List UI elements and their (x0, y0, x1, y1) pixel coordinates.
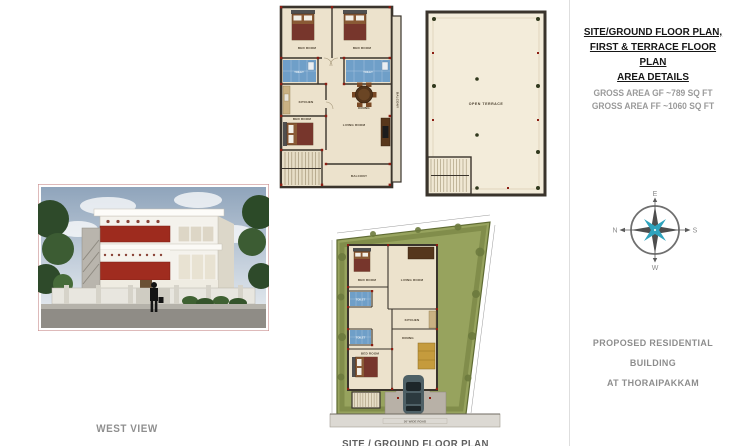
compass-icon: E S W N (610, 188, 700, 272)
gross-area-gf: GROSS AREA GF ~789 SQ FT (577, 87, 729, 100)
sidewalk (41, 304, 266, 309)
title-block-divider (569, 0, 570, 446)
room-label: KITCHEN (405, 318, 420, 322)
sofa-icon (408, 247, 434, 259)
room-label: DINING (402, 336, 414, 340)
compass-east-label: E (653, 191, 658, 198)
drawing-sheet: BED ROOM BED ROOM TOILET TOILET KITCHEN … (0, 0, 735, 446)
compass-west-label: W (652, 265, 659, 272)
compass-south-label: S (693, 228, 698, 235)
bed-icon (283, 122, 313, 146)
tv-unit-icon (381, 118, 390, 146)
sheet-title-line: AREA DETAILS (577, 70, 729, 85)
building-footprint: BED ROOM LIVING ROOM TOILET KITCHEN TOIL… (347, 244, 438, 390)
room-label: BED ROOM (361, 352, 379, 356)
gross-area-notes: GROSS AREA GF ~789 SQ FT GROSS AREA FF ~… (577, 87, 729, 113)
room-label: TOILET (356, 336, 366, 340)
room-label: LIVING ROOM (401, 278, 424, 282)
first-floor-plan: BED ROOM BED ROOM TOILET TOILET KITCHEN … (278, 4, 404, 190)
stairs-icon (352, 392, 380, 408)
compass-north-label: N (612, 228, 617, 235)
building (82, 209, 234, 298)
room-label: TOILET (294, 70, 304, 74)
sheet-title-line: FIRST & TERRACE FLOOR PLAN (577, 40, 729, 70)
room-label: LIVING ROOM (343, 123, 366, 127)
road: 30' WIDE ROAD (330, 414, 500, 427)
sheet-title-line: SITE/GROUND FLOOR PLAN, (577, 25, 729, 40)
room-label: TOILET (356, 298, 366, 302)
site-plan-caption: SITE / GROUND FLOOR PLAN (335, 438, 496, 446)
west-view-render (38, 184, 269, 331)
room-label: BED ROOM (293, 117, 311, 121)
room-label: BED ROOM (353, 46, 371, 50)
room-label: DINING (358, 106, 370, 110)
kitchen-counter-icon (429, 311, 436, 328)
cabinet-icon (418, 343, 435, 369)
room-label: BED ROOM (358, 278, 376, 282)
stairs-icon (428, 157, 471, 194)
bed-icon (291, 10, 315, 40)
gross-area-ff: GROSS AREA FF ~1060 SQ FT (577, 100, 729, 113)
road-label: 30' WIDE ROAD (404, 420, 427, 424)
room-label: BED ROOM (298, 46, 316, 50)
bed-icon (343, 10, 367, 40)
bed-icon (353, 248, 371, 272)
room-label: BALCONY (351, 174, 368, 178)
stairs-icon (282, 151, 321, 186)
bed-icon (352, 357, 378, 377)
room-label: TOILET (363, 70, 373, 74)
road (41, 309, 266, 328)
site-ground-floor-plan: BED ROOM LIVING ROOM TOILET KITCHEN TOIL… (328, 202, 503, 434)
car-icon (403, 375, 424, 414)
room-label: KITCHEN (299, 100, 314, 104)
terrace-floor-plan: OPEN TERRACE (419, 9, 549, 201)
terrace-label: OPEN TERRACE (469, 102, 504, 106)
sheet-title: SITE/GROUND FLOOR PLAN, FIRST & TERRACE … (577, 25, 729, 85)
project-name: PROPOSED RESIDENTIAL BUILDING AT THORAIP… (577, 334, 729, 394)
render-image (38, 187, 269, 328)
project-name-line1: PROPOSED RESIDENTIAL BUILDING (577, 334, 729, 374)
west-view-caption: WEST VIEW (55, 423, 199, 435)
project-name-line2: AT THORAIPAKKAM (577, 374, 729, 394)
balcony-rail-dots (104, 254, 162, 256)
room-label: BALCONY (396, 92, 400, 109)
kitchen-counter-icon (283, 86, 290, 114)
